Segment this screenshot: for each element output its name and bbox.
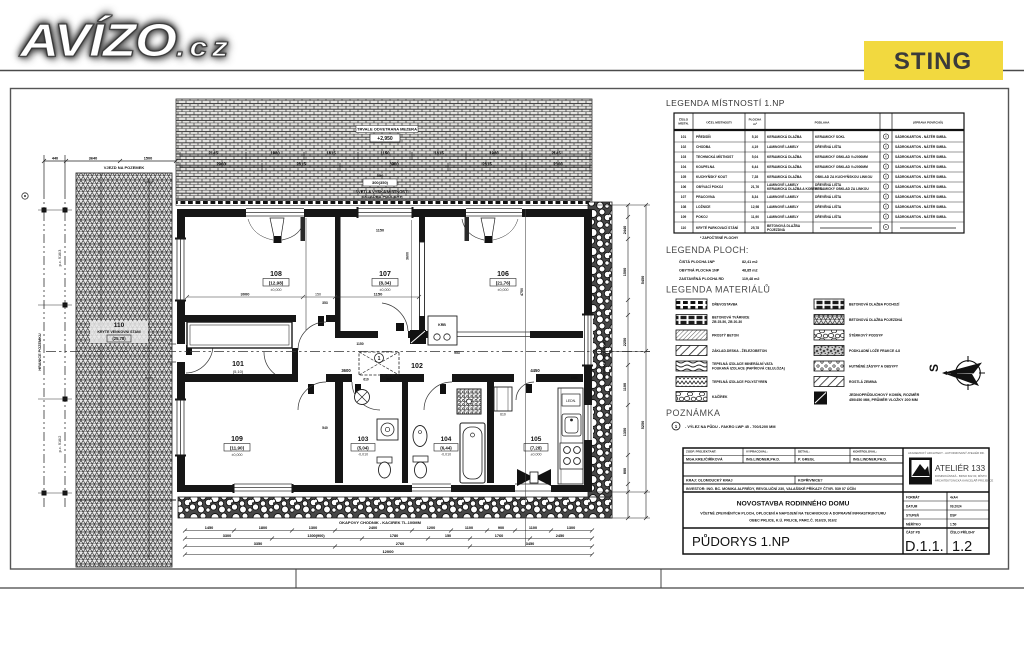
svg-text:5,10: 5,10	[752, 135, 759, 139]
svg-text:ZÁKLAD.DESKA - ŽELEZOBETON: ZÁKLAD.DESKA - ŽELEZOBETON	[712, 348, 767, 353]
svg-text:110: 110	[681, 226, 686, 230]
svg-text:KERAMICKÝ OBKLAD ZA LINKOU: KERAMICKÝ OBKLAD ZA LINKOU	[815, 186, 869, 191]
svg-text:1150: 1150	[374, 292, 383, 297]
svg-text:(11,90): (11,90)	[230, 446, 245, 451]
svg-text:3600: 3600	[406, 252, 410, 260]
svg-text:101: 101	[681, 135, 687, 139]
svg-text:K: K	[885, 145, 887, 149]
svg-text:INVESTOR: ING. BC. MONIKA ALFR: INVESTOR: ING. BC. MONIKA ALFRÉDY, REVOL…	[686, 486, 856, 491]
svg-text:MĚŘÍTKO: MĚŘÍTKO	[906, 522, 921, 527]
svg-text:-0,010: -0,010	[358, 453, 368, 457]
svg-text:(6,44): (6,44)	[440, 446, 452, 451]
svg-text:105: 105	[681, 175, 687, 179]
svg-text:p.c. 916/2: p.c. 916/2	[58, 436, 62, 453]
svg-text:1100: 1100	[623, 383, 627, 391]
svg-text:LAMINOVÉ LAMELY: LAMINOVÉ LAMELY	[767, 214, 799, 219]
svg-text:1450: 1450	[205, 526, 213, 530]
svg-text:PODLAHA: PODLAHA	[815, 121, 831, 125]
svg-text:1100: 1100	[465, 526, 473, 530]
svg-text:107: 107	[681, 195, 687, 199]
svg-text:LAMINOVÉ LAMELY: LAMINOVÉ LAMELY	[767, 194, 799, 199]
svg-text:SÁDROKARTON - NÁTĚR SMBA.: SÁDROKARTON - NÁTĚR SMBA.	[895, 134, 947, 139]
svg-text:119,48 m2: 119,48 m2	[742, 277, 759, 281]
svg-text:6,44: 6,44	[752, 165, 759, 169]
svg-text:- VÝLEZ NA PŮDU - FAKRO LWP 45: - VÝLEZ NA PŮDU - FAKRO LWP 45 - 700/120…	[685, 424, 776, 429]
svg-text:150: 150	[315, 293, 321, 297]
svg-text:TEPELNÁ IZOLACE MINERÁLNÍ VATA: TEPELNÁ IZOLACE MINERÁLNÍ VATA	[712, 361, 773, 366]
svg-text:DETAIL:: DETAIL:	[798, 450, 810, 454]
svg-text:DŘEVĚNÁ LIŠTA: DŘEVĚNÁ LIŠTA	[815, 214, 842, 219]
svg-text:2145: 2145	[208, 151, 218, 156]
svg-text:TRVALE ODVETRANA MEZERA: TRVALE ODVETRANA MEZERA	[357, 127, 417, 132]
svg-text:K: K	[885, 155, 887, 159]
svg-text:(25,78): (25,78)	[112, 336, 126, 341]
svg-text:KERAMICKÝ SOKL: KERAMICKÝ SOKL	[815, 134, 845, 139]
svg-text:2440: 2440	[623, 226, 627, 234]
svg-text:BETONOVÁ DLAŽBA POCHOZÍ: BETONOVÁ DLAŽBA POCHOZÍ	[849, 302, 900, 307]
svg-text:SÁDROKARTON - NÁTĚR SMBA.: SÁDROKARTON - NÁTĚR SMBA.	[895, 174, 947, 179]
svg-text:1815: 1815	[434, 151, 444, 156]
svg-text:VYPRACOVAL:: VYPRACOVAL:	[746, 450, 768, 454]
svg-text:1980: 1980	[270, 151, 280, 156]
svg-text:12,98: 12,98	[751, 205, 759, 209]
svg-text:SÁDROKARTON - NÁTĚR SMBA.: SÁDROKARTON - NÁTĚR SMBA.	[895, 144, 947, 149]
svg-text:VJEZD NA POZEMEK: VJEZD NA POZEMEK	[104, 165, 145, 170]
svg-text:103: 103	[681, 155, 687, 159]
svg-text:105: 105	[531, 436, 542, 443]
svg-text:102: 102	[411, 363, 423, 370]
svg-text:K: K	[885, 205, 887, 209]
svg-text:KAČÍREK: KAČÍREK	[712, 394, 728, 399]
svg-text:KUCHYŇSKÝ KOUT: KUCHYŇSKÝ KOUT	[696, 174, 727, 179]
svg-text:(7,28): (7,28)	[530, 446, 542, 451]
svg-text:2300: 2300	[553, 162, 563, 167]
svg-text:(21,76): (21,76)	[496, 281, 511, 286]
svg-text:2815: 2815	[482, 162, 492, 167]
svg-text:09.2024: 09.2024	[950, 505, 962, 509]
svg-text:KERAMICKÁ DLAŽBA: KERAMICKÁ DLAŽBA	[767, 134, 802, 139]
svg-text:150: 150	[445, 534, 451, 538]
svg-text:SÁDROKARTON - NÁTĚR SMBA.: SÁDROKARTON - NÁTĚR SMBA.	[895, 164, 947, 169]
svg-text:1800: 1800	[259, 526, 267, 530]
svg-text:ČISTÁ PLOCHA 1NP: ČISTÁ PLOCHA 1NP	[679, 259, 715, 264]
svg-text:DŘEVĚNÁ LIŠTA: DŘEVĚNÁ LIŠTA	[815, 194, 842, 199]
svg-text:610: 610	[363, 378, 369, 382]
svg-text:OBYTNÁ PLOCHA 1NP: OBYTNÁ PLOCHA 1NP	[679, 268, 720, 273]
svg-text:K: K	[885, 225, 887, 229]
svg-text:600: 600	[386, 378, 392, 382]
svg-text:1780: 1780	[390, 534, 398, 538]
svg-text:ZB 25-50, ZB 20-30: ZB 25-50, ZB 20-30	[712, 320, 742, 324]
svg-text:440: 440	[52, 157, 58, 161]
svg-text:K: K	[885, 185, 887, 189]
svg-text:ČÁST PD: ČÁST PD	[906, 530, 921, 535]
svg-text:K: K	[885, 175, 887, 179]
svg-text:POKOJ: POKOJ	[696, 215, 708, 219]
svg-text:K: K	[885, 195, 887, 199]
svg-text:KERAMICKÁ DLAŽBA: KERAMICKÁ DLAŽBA	[767, 154, 802, 159]
svg-text:KOPŘIVNICE?: KOPŘIVNICE?	[798, 478, 823, 483]
svg-text:4750: 4750	[520, 288, 524, 296]
svg-text:KOUPELNA: KOUPELNA	[696, 165, 715, 169]
svg-text:1300: 1300	[567, 526, 575, 530]
svg-text:4xA4: 4xA4	[950, 496, 958, 500]
svg-text:2760: 2760	[396, 542, 404, 546]
svg-text:(5,04): (5,04)	[357, 446, 369, 451]
svg-text:K: K	[885, 165, 887, 169]
svg-text:540: 540	[322, 426, 328, 430]
svg-text:104: 104	[441, 436, 452, 443]
svg-text:610: 610	[500, 413, 506, 417]
svg-text:OBEC PRLICE, K.Ú. PRLICE, PARC: OBEC PRLICE, K.Ú. PRLICE, PARC.Č. 916/29…	[749, 518, 836, 523]
svg-text:DATUM: DATUM	[906, 505, 918, 509]
svg-text:KRAJ: OLOMOUCKÝ KRAJ: KRAJ: OLOMOUCKÝ KRAJ	[686, 478, 733, 483]
svg-text:ŠTĚRKOVÝ PODSYP: ŠTĚRKOVÝ PODSYP	[849, 333, 883, 338]
svg-text:108: 108	[681, 205, 687, 209]
svg-text:1: 1	[378, 356, 381, 362]
svg-text:102: 102	[681, 145, 687, 149]
svg-text:D.1.1.: D.1.1.	[905, 539, 944, 555]
svg-text:KRYTÉ PARKOVACÍ STÁNÍ: KRYTÉ PARKOVACÍ STÁNÍ	[696, 225, 738, 230]
svg-text:4,19: 4,19	[752, 145, 759, 149]
svg-text:(12,98): (12,98)	[269, 281, 284, 286]
svg-text:1300: 1300	[309, 526, 317, 530]
svg-text:3640: 3640	[89, 157, 97, 161]
svg-text:ATELIÉR 133: ATELIÉR 133	[935, 463, 985, 473]
svg-text:MGA.KREJČIŘÍKOVÁ: MGA.KREJČIŘÍKOVÁ	[686, 457, 723, 462]
svg-text:104: 104	[681, 165, 687, 169]
svg-text:SÁDROKARTON - NÁTĚR SMBA.: SÁDROKARTON - NÁTĚR SMBA.	[895, 194, 947, 199]
svg-text:350: 350	[377, 173, 384, 178]
svg-text:BETONOVÁ TVÁRNICE: BETONOVÁ TVÁRNICE	[712, 315, 750, 320]
svg-text:(ÚPRAVA POVRCHŮ): (ÚPRAVA POVRCHŮ)	[913, 120, 943, 125]
svg-text:LEDN.: LEDN.	[566, 399, 576, 403]
svg-text:5450: 5450	[641, 276, 645, 284]
svg-text:109: 109	[681, 215, 687, 219]
svg-text:DŘEVOSTAVBA: DŘEVOSTAVBA	[712, 302, 738, 307]
svg-text:108: 108	[270, 271, 282, 278]
svg-text:±0,000: ±0,000	[531, 453, 542, 457]
svg-text:KRYTE VENKOVNI STANI: KRYTE VENKOVNI STANI	[97, 330, 140, 334]
svg-text:ARCHITEKTONICKÁ KANCELÁŘ PROJE: ARCHITEKTONICKÁ KANCELÁŘ PROJEKCE	[935, 478, 993, 483]
svg-text:4450: 4450	[530, 368, 540, 373]
svg-text:3000: 3000	[241, 292, 251, 297]
svg-text:82,41 m2: 82,41 m2	[742, 260, 758, 264]
svg-text:LEGENDA MÍSTNOSTÍ 1.NP: LEGENDA MÍSTNOSTÍ 1.NP	[666, 98, 785, 108]
svg-text:SÁDROKARTON - NÁTĚR SMBA.: SÁDROKARTON - NÁTĚR SMBA.	[895, 184, 947, 189]
svg-text:ING.LINDNER,PH.D.: ING.LINDNER,PH.D.	[746, 458, 780, 462]
svg-text:FOUKANÁ IZOLACE (PAPÍROVÁ CELU: FOUKANÁ IZOLACE (PAPÍROVÁ CELULÓZA)	[712, 366, 785, 371]
svg-text:OKAPOVY CHODNIK - KACIREK TL.1: OKAPOVY CHODNIK - KACIREK TL.100MM	[339, 520, 422, 525]
svg-text:BETONOVÁ DLAŽBA POJEZDNÁ: BETONOVÁ DLAŽBA POJEZDNÁ	[849, 317, 903, 322]
svg-text:1350: 1350	[623, 428, 627, 436]
svg-text:5,04: 5,04	[752, 155, 759, 159]
svg-text:7,28: 7,28	[752, 175, 759, 179]
svg-text:P. GREGL: P. GREGL	[798, 458, 816, 462]
svg-text:HUTNĚNÉ ZÁSYPY A OBSYPY: HUTNĚNÉ ZÁSYPY A OBSYPY	[849, 364, 899, 369]
svg-text:2450: 2450	[556, 534, 564, 538]
svg-text:LEGENDA MATERIÁLŮ: LEGENDA MATERIÁLŮ	[666, 284, 770, 295]
svg-text:PŘEDSÍŇ: PŘEDSÍŇ	[696, 134, 711, 139]
svg-text:STING: STING	[894, 48, 972, 75]
svg-text:DŘEVĚNÁ LIŠTA: DŘEVĚNÁ LIŠTA	[815, 144, 842, 149]
svg-text:MÍSTN.: MÍSTN.	[678, 121, 688, 126]
svg-text:450/450 MM, PRŮMĚR VLOŽKY 200: 450/450 MM, PRŮMĚR VLOŽKY 200 MM	[849, 397, 918, 402]
svg-text:(5,10): (5,10)	[233, 369, 244, 374]
svg-text:300(350): 300(350)	[372, 180, 389, 185]
svg-text:ROSTLÁ ZEMINA: ROSTLÁ ZEMINA	[849, 379, 877, 384]
svg-text:1500: 1500	[144, 157, 152, 161]
svg-text:SÁDROKARTON - NÁTĚR SMBA.: SÁDROKARTON - NÁTĚR SMBA.	[895, 214, 947, 219]
svg-text:KRB: KRB	[438, 323, 446, 327]
svg-text:PROSTÝ BETON: PROSTÝ BETON	[712, 333, 739, 338]
svg-text:1150: 1150	[376, 229, 384, 233]
svg-text:ZASTAVĚNÁ PLOCHA RD: ZASTAVĚNÁ PLOCHA RD	[679, 276, 724, 281]
svg-text:353: 353	[322, 301, 328, 305]
svg-text:25,78: 25,78	[751, 226, 759, 230]
svg-text:CHODBA: CHODBA	[696, 145, 711, 149]
svg-text:DSP: DSP	[950, 514, 957, 518]
svg-text:K: K	[885, 135, 887, 139]
svg-text:LOŽNICE: LOŽNICE	[696, 204, 711, 209]
svg-text:-0,010: -0,010	[441, 453, 451, 457]
svg-text:DŘEVĚNÁ LIŠTA: DŘEVĚNÁ LIŠTA	[815, 204, 842, 209]
svg-text:(8,34): (8,34)	[379, 281, 391, 286]
svg-text:48,85 m2: 48,85 m2	[742, 269, 758, 273]
svg-text:1300(900): 1300(900)	[307, 534, 325, 538]
svg-text:107: 107	[379, 271, 391, 278]
svg-text:ING.LINDNER,PH.D.: ING.LINDNER,PH.D.	[853, 458, 887, 462]
svg-text:21,76: 21,76	[751, 185, 759, 189]
svg-text:HRANICE POZEMKU: HRANICE POZEMKU	[38, 333, 42, 371]
svg-text:2400: 2400	[369, 526, 377, 530]
svg-text:ÚČEL MÍSTNOSTI: ÚČEL MÍSTNOSTI	[706, 120, 731, 125]
svg-text:PRACOVNA: PRACOVNA	[696, 195, 715, 199]
svg-text:OBKLAD ZA KUCHYŇSKOU LINKOU: OBKLAD ZA KUCHYŇSKOU LINKOU	[815, 174, 873, 179]
svg-text:PLOCHA: PLOCHA	[749, 118, 763, 122]
svg-text:TECHNICKÁ MÍSTNOST: TECHNICKÁ MÍSTNOST	[696, 154, 733, 159]
svg-text:±0,000: ±0,000	[498, 288, 509, 292]
svg-text:1:50: 1:50	[950, 523, 957, 527]
svg-text:PODKLADNÍ LOŽE FRAKCE 4-8: PODKLADNÍ LOŽE FRAKCE 4-8	[849, 348, 900, 353]
svg-text:LEGENDA PLOCH:: LEGENDA PLOCH:	[666, 245, 749, 255]
svg-text:1980: 1980	[489, 151, 499, 156]
svg-text:DOMINIKÁNSKÁ - BRNO 602 00, MÍ: DOMINIKÁNSKÁ - BRNO 602 00, MÍSTO	[935, 474, 988, 478]
svg-text:800: 800	[623, 468, 627, 474]
svg-text:* ZAPOČTENÉ PLOCHY: * ZAPOČTENÉ PLOCHY	[700, 235, 739, 240]
svg-text:1150: 1150	[356, 342, 363, 346]
svg-text:VČETNĚ ZPEVNĚNÝCH PLOCH, OPLOC: VČETNĚ ZPEVNĚNÝCH PLOCH, OPLOCENÍ A NAPO…	[700, 511, 886, 516]
svg-text:1815: 1815	[326, 151, 336, 156]
svg-text:109: 109	[231, 436, 243, 443]
svg-text:1500: 1500	[623, 268, 627, 276]
svg-text:953: 953	[454, 351, 460, 355]
svg-text:SÁDROKARTON - NÁTĚR SMBA.: SÁDROKARTON - NÁTĚR SMBA.	[895, 154, 947, 159]
svg-text:KONTROLOVAL:: KONTROLOVAL:	[853, 450, 877, 454]
svg-text:SÁDROKARTON - NÁTĚR SMBA.: SÁDROKARTON - NÁTĚR SMBA.	[895, 204, 947, 209]
svg-text:POZNÁMKA: POZNÁMKA	[666, 408, 721, 418]
svg-text:PŮDORYS 1.NP: PŮDORYS 1.NP	[692, 534, 790, 549]
svg-text:106: 106	[497, 271, 509, 278]
svg-text:1.2: 1.2	[952, 539, 972, 555]
svg-text:±0,000: ±0,000	[271, 288, 282, 292]
svg-text:KERAMICKÁ DLAŽBA: KERAMICKÁ DLAŽBA	[767, 164, 802, 169]
svg-text:m²: m²	[753, 122, 757, 126]
svg-text:OKAPOVY CHODNIK: OKAPOVY CHODNIK	[602, 340, 607, 380]
svg-text:3450: 3450	[526, 542, 534, 546]
svg-text:SKLADBA PODLAHY: SKLADBA PODLAHY	[362, 194, 402, 199]
svg-text:12000: 12000	[382, 549, 394, 554]
svg-text:110: 110	[114, 322, 125, 329]
svg-text:ČÍSLO PŘÍLOHY: ČÍSLO PŘÍLOHY	[950, 530, 976, 535]
svg-text:p.c. 916/3: p.c. 916/3	[58, 250, 62, 267]
svg-text:101: 101	[232, 361, 244, 368]
svg-text:2815: 2815	[296, 162, 306, 167]
svg-text:11,90: 11,90	[751, 215, 759, 219]
svg-text:103: 103	[358, 436, 369, 443]
svg-text:2960: 2960	[216, 162, 226, 167]
svg-text:2250: 2250	[623, 338, 627, 346]
svg-text:106: 106	[681, 185, 687, 189]
svg-text:3600: 3600	[341, 368, 351, 373]
svg-text:TEPELNÁ IZOLACE POLYSTYREN: TEPELNÁ IZOLACE POLYSTYREN	[712, 379, 768, 384]
svg-text:5250: 5250	[641, 421, 645, 429]
svg-text:+2,950: +2,950	[377, 136, 393, 142]
svg-text:3350: 3350	[254, 542, 262, 546]
svg-text:OBÝVACÍ POKOJ: OBÝVACÍ POKOJ	[696, 184, 723, 189]
svg-text:LAMINOVÉ LAMELY: LAMINOVÉ LAMELY	[767, 144, 799, 149]
svg-text:JEDNOPRŮDUCHOVÝ KOMÍN, ROZMĚR: JEDNOPRŮDUCHOVÝ KOMÍN, ROZMĚR	[849, 392, 920, 397]
svg-text:3300: 3300	[223, 534, 231, 538]
svg-text:S: S	[927, 364, 941, 372]
svg-text:1150: 1150	[380, 151, 390, 156]
svg-text:8,34: 8,34	[752, 195, 759, 199]
svg-text:900: 900	[498, 526, 504, 530]
svg-text:KERAMICKÝ OBKLAD V=2000MM: KERAMICKÝ OBKLAD V=2000MM	[815, 154, 868, 159]
svg-text:1760: 1760	[495, 534, 503, 538]
svg-text:2145: 2145	[551, 151, 561, 156]
svg-text:ZODP. PROJEKTANT:: ZODP. PROJEKTANT:	[686, 450, 716, 454]
svg-text:1100: 1100	[529, 526, 537, 530]
svg-text:K: K	[885, 215, 887, 219]
svg-text:NOVOSTAVBA RODINNÉHO DOMU: NOVOSTAVBA RODINNÉHO DOMU	[737, 499, 850, 508]
svg-text:POJEZDNÁ: POJEZDNÁ	[767, 227, 786, 232]
svg-text:STUPEŇ: STUPEŇ	[906, 513, 920, 518]
svg-text:FORMÁT: FORMÁT	[906, 495, 920, 500]
svg-text:±0,000: ±0,000	[232, 453, 243, 457]
svg-text:KERAMICKÁ DLAŽBA: KERAMICKÁ DLAŽBA	[767, 174, 802, 179]
svg-text:1993: 1993	[570, 376, 577, 380]
svg-text:LAMINOVÉ LAMELY: LAMINOVÉ LAMELY	[767, 204, 799, 209]
svg-text:KERAMICKÝ OBKLAD V=2000MM: KERAMICKÝ OBKLAD V=2000MM	[815, 164, 868, 169]
svg-text:3900: 3900	[389, 162, 399, 167]
svg-text:1200: 1200	[427, 526, 435, 530]
svg-text:AKADEMICKÝ ARCHITEKT - AUTORIZ: AKADEMICKÝ ARCHITEKT - AUTORIZOVANÝ ATEL…	[908, 450, 985, 455]
